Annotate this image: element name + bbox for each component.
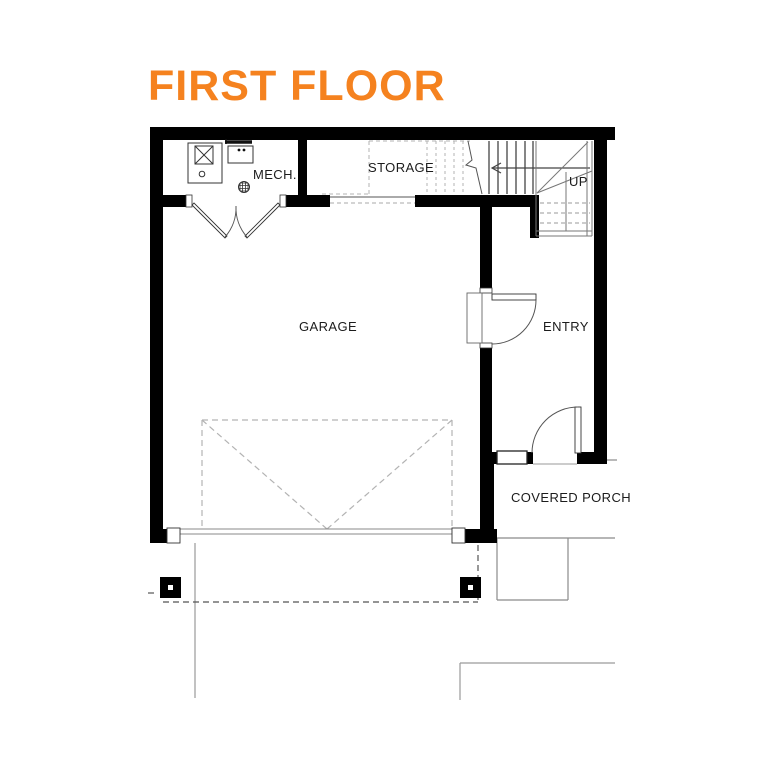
wall-porch-west — [480, 453, 494, 542]
floor-drain-icon — [238, 181, 250, 193]
wall-stair-side — [530, 195, 539, 238]
stair-break-line — [466, 141, 482, 194]
garage-door — [167, 528, 465, 543]
water-heater-icon — [188, 143, 222, 183]
wall-mech-bottom-right — [280, 195, 330, 207]
entry-door — [467, 288, 536, 348]
room-label-storage: STORAGE — [368, 160, 434, 175]
entry-window — [497, 451, 527, 464]
wall-entry-left-upper — [480, 195, 492, 293]
stair-direction-label: UP — [569, 174, 588, 189]
room-label-mech: MECH. — [253, 167, 297, 182]
storage-opening — [330, 197, 415, 203]
room-label-entry: ENTRY — [543, 319, 589, 334]
wall-mech-divider — [298, 140, 307, 197]
wall-garage-bottom-right — [465, 529, 497, 543]
room-label-covered-porch: COVERED PORCH — [511, 490, 631, 505]
wall-entry-bottom-b — [577, 452, 607, 464]
garage-door-track-dashes — [202, 420, 452, 529]
floor-plan-drawing — [0, 0, 768, 768]
wall-top — [150, 127, 615, 140]
porch-post-right — [460, 577, 481, 598]
porch-post-left — [160, 577, 181, 598]
room-label-garage: GARAGE — [299, 319, 357, 334]
furnace-icon — [225, 139, 253, 163]
wall-right — [594, 140, 607, 459]
staircase — [427, 141, 592, 236]
driveway-outline — [148, 545, 478, 602]
wall-left — [150, 127, 163, 543]
floor-plan-page: FIRST FLOOR — [0, 0, 768, 768]
mech-double-door — [186, 195, 286, 238]
wall-entry-left-lower — [480, 343, 492, 453]
wall-stair-front — [415, 195, 539, 207]
wall-garage-bottom-left — [150, 529, 167, 543]
front-door — [532, 407, 581, 464]
